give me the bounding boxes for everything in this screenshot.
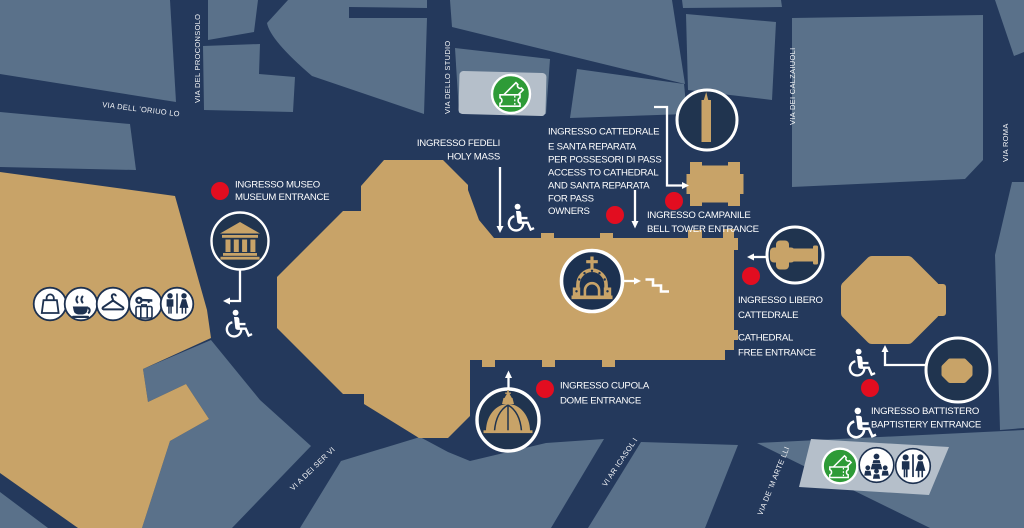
svg-text:FREE ENTRANCE: FREE ENTRANCE bbox=[738, 348, 816, 359]
svg-text:VIA DELLO STUDIO: VIA DELLO STUDIO bbox=[443, 40, 452, 114]
svg-text:CATHEDRAL: CATHEDRAL bbox=[738, 333, 794, 344]
svg-text:INGRESSO BATTISTERO: INGRESSO BATTISTERO bbox=[871, 406, 979, 417]
svg-text:INGRESSO CATTEDRALE: INGRESSO CATTEDRALE bbox=[548, 127, 659, 138]
svg-text:CATTEDRALE: CATTEDRALE bbox=[738, 310, 798, 321]
svg-text:OWNERS: OWNERS bbox=[548, 206, 590, 217]
svg-text:INGRESSO MUSEO: INGRESSO MUSEO bbox=[235, 180, 320, 191]
svg-text:BELL TOWER ENTRANCE: BELL TOWER ENTRANCE bbox=[647, 224, 759, 235]
svg-text:VIA DEL PROCONSOLO: VIA DEL PROCONSOLO bbox=[193, 14, 202, 103]
svg-text:PER POSSESORI DI PASS: PER POSSESORI DI PASS bbox=[548, 154, 661, 165]
svg-text:INGRESSO CAMPANILE: INGRESSO CAMPANILE bbox=[647, 210, 751, 221]
svg-text:INGRESSO FEDELI: INGRESSO FEDELI bbox=[417, 138, 500, 149]
svg-text:E SANTA REPARATA: E SANTA REPARATA bbox=[548, 142, 637, 153]
svg-text:MUSEUM ENTRANCE: MUSEUM ENTRANCE bbox=[235, 192, 329, 203]
svg-text:HOLY MASS: HOLY MASS bbox=[447, 152, 500, 163]
svg-text:VIA ROMA: VIA ROMA bbox=[1001, 123, 1010, 162]
svg-text:VIA DEI CALZAIUOLI: VIA DEI CALZAIUOLI bbox=[788, 47, 797, 125]
svg-text:INGRESSO LIBERO: INGRESSO LIBERO bbox=[738, 295, 823, 306]
svg-text:AND SANTA REPARATA: AND SANTA REPARATA bbox=[548, 181, 650, 192]
svg-text:DOME ENTRANCE: DOME ENTRANCE bbox=[560, 396, 641, 407]
svg-text:BAPTISTERY ENTRANCE: BAPTISTERY ENTRANCE bbox=[871, 420, 981, 431]
svg-text:INGRESSO CUPOLA: INGRESSO CUPOLA bbox=[560, 381, 650, 392]
svg-text:ACCESS TO CATHEDRAL: ACCESS TO CATHEDRAL bbox=[548, 168, 659, 179]
svg-text:FOR PASS: FOR PASS bbox=[548, 193, 594, 204]
